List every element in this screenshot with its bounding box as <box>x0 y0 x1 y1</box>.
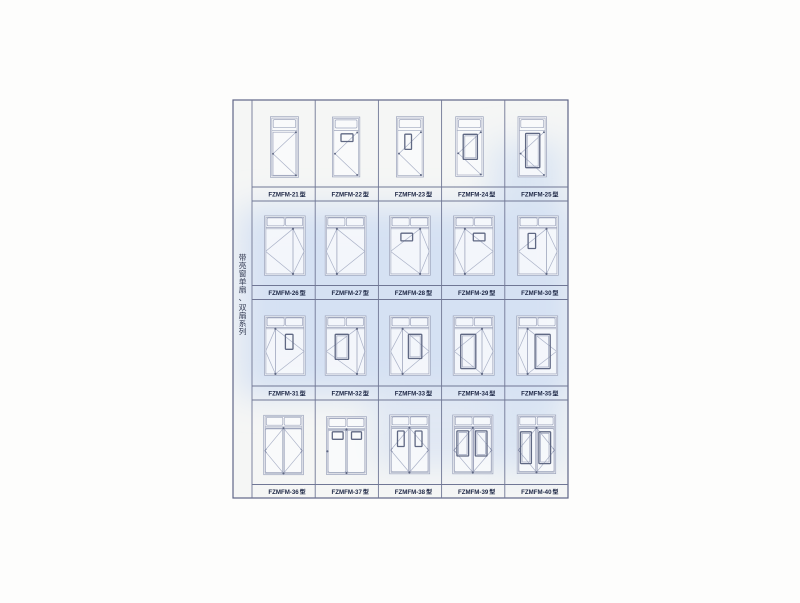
svg-text:FZMFM-22: FZMFM-22 <box>332 192 363 199</box>
svg-text:FZMFM-37: FZMFM-37 <box>332 489 363 496</box>
svg-text:FZMFM-26: FZMFM-26 <box>268 290 299 297</box>
svg-text:FZMFM-21: FZMFM-21 <box>268 192 299 199</box>
svg-text:FZMFM-36: FZMFM-36 <box>268 489 299 496</box>
svg-text:FZMFM-35: FZMFM-35 <box>521 391 552 398</box>
svg-text:FZMFM-40: FZMFM-40 <box>521 489 552 496</box>
svg-text:FZMFM-23: FZMFM-23 <box>395 192 426 199</box>
svg-text:FZMFM-25: FZMFM-25 <box>521 192 552 199</box>
svg-text:FZMFM-31: FZMFM-31 <box>268 391 299 398</box>
svg-text:FZMFM-38: FZMFM-38 <box>395 489 426 496</box>
svg-text:FZMFM-33: FZMFM-33 <box>395 391 426 398</box>
svg-text:FZMFM-39: FZMFM-39 <box>458 489 489 496</box>
svg-text:FZMFM-24: FZMFM-24 <box>458 192 489 199</box>
svg-text:FZMFM-27: FZMFM-27 <box>332 290 363 297</box>
svg-text:FZMFM-34: FZMFM-34 <box>458 391 489 398</box>
svg-text:FZMFM-32: FZMFM-32 <box>332 391 363 398</box>
svg-text:FZMFM-30: FZMFM-30 <box>521 290 552 297</box>
svg-text:FZMFM-28: FZMFM-28 <box>395 290 426 297</box>
svg-text:FZMFM-29: FZMFM-29 <box>458 290 489 297</box>
